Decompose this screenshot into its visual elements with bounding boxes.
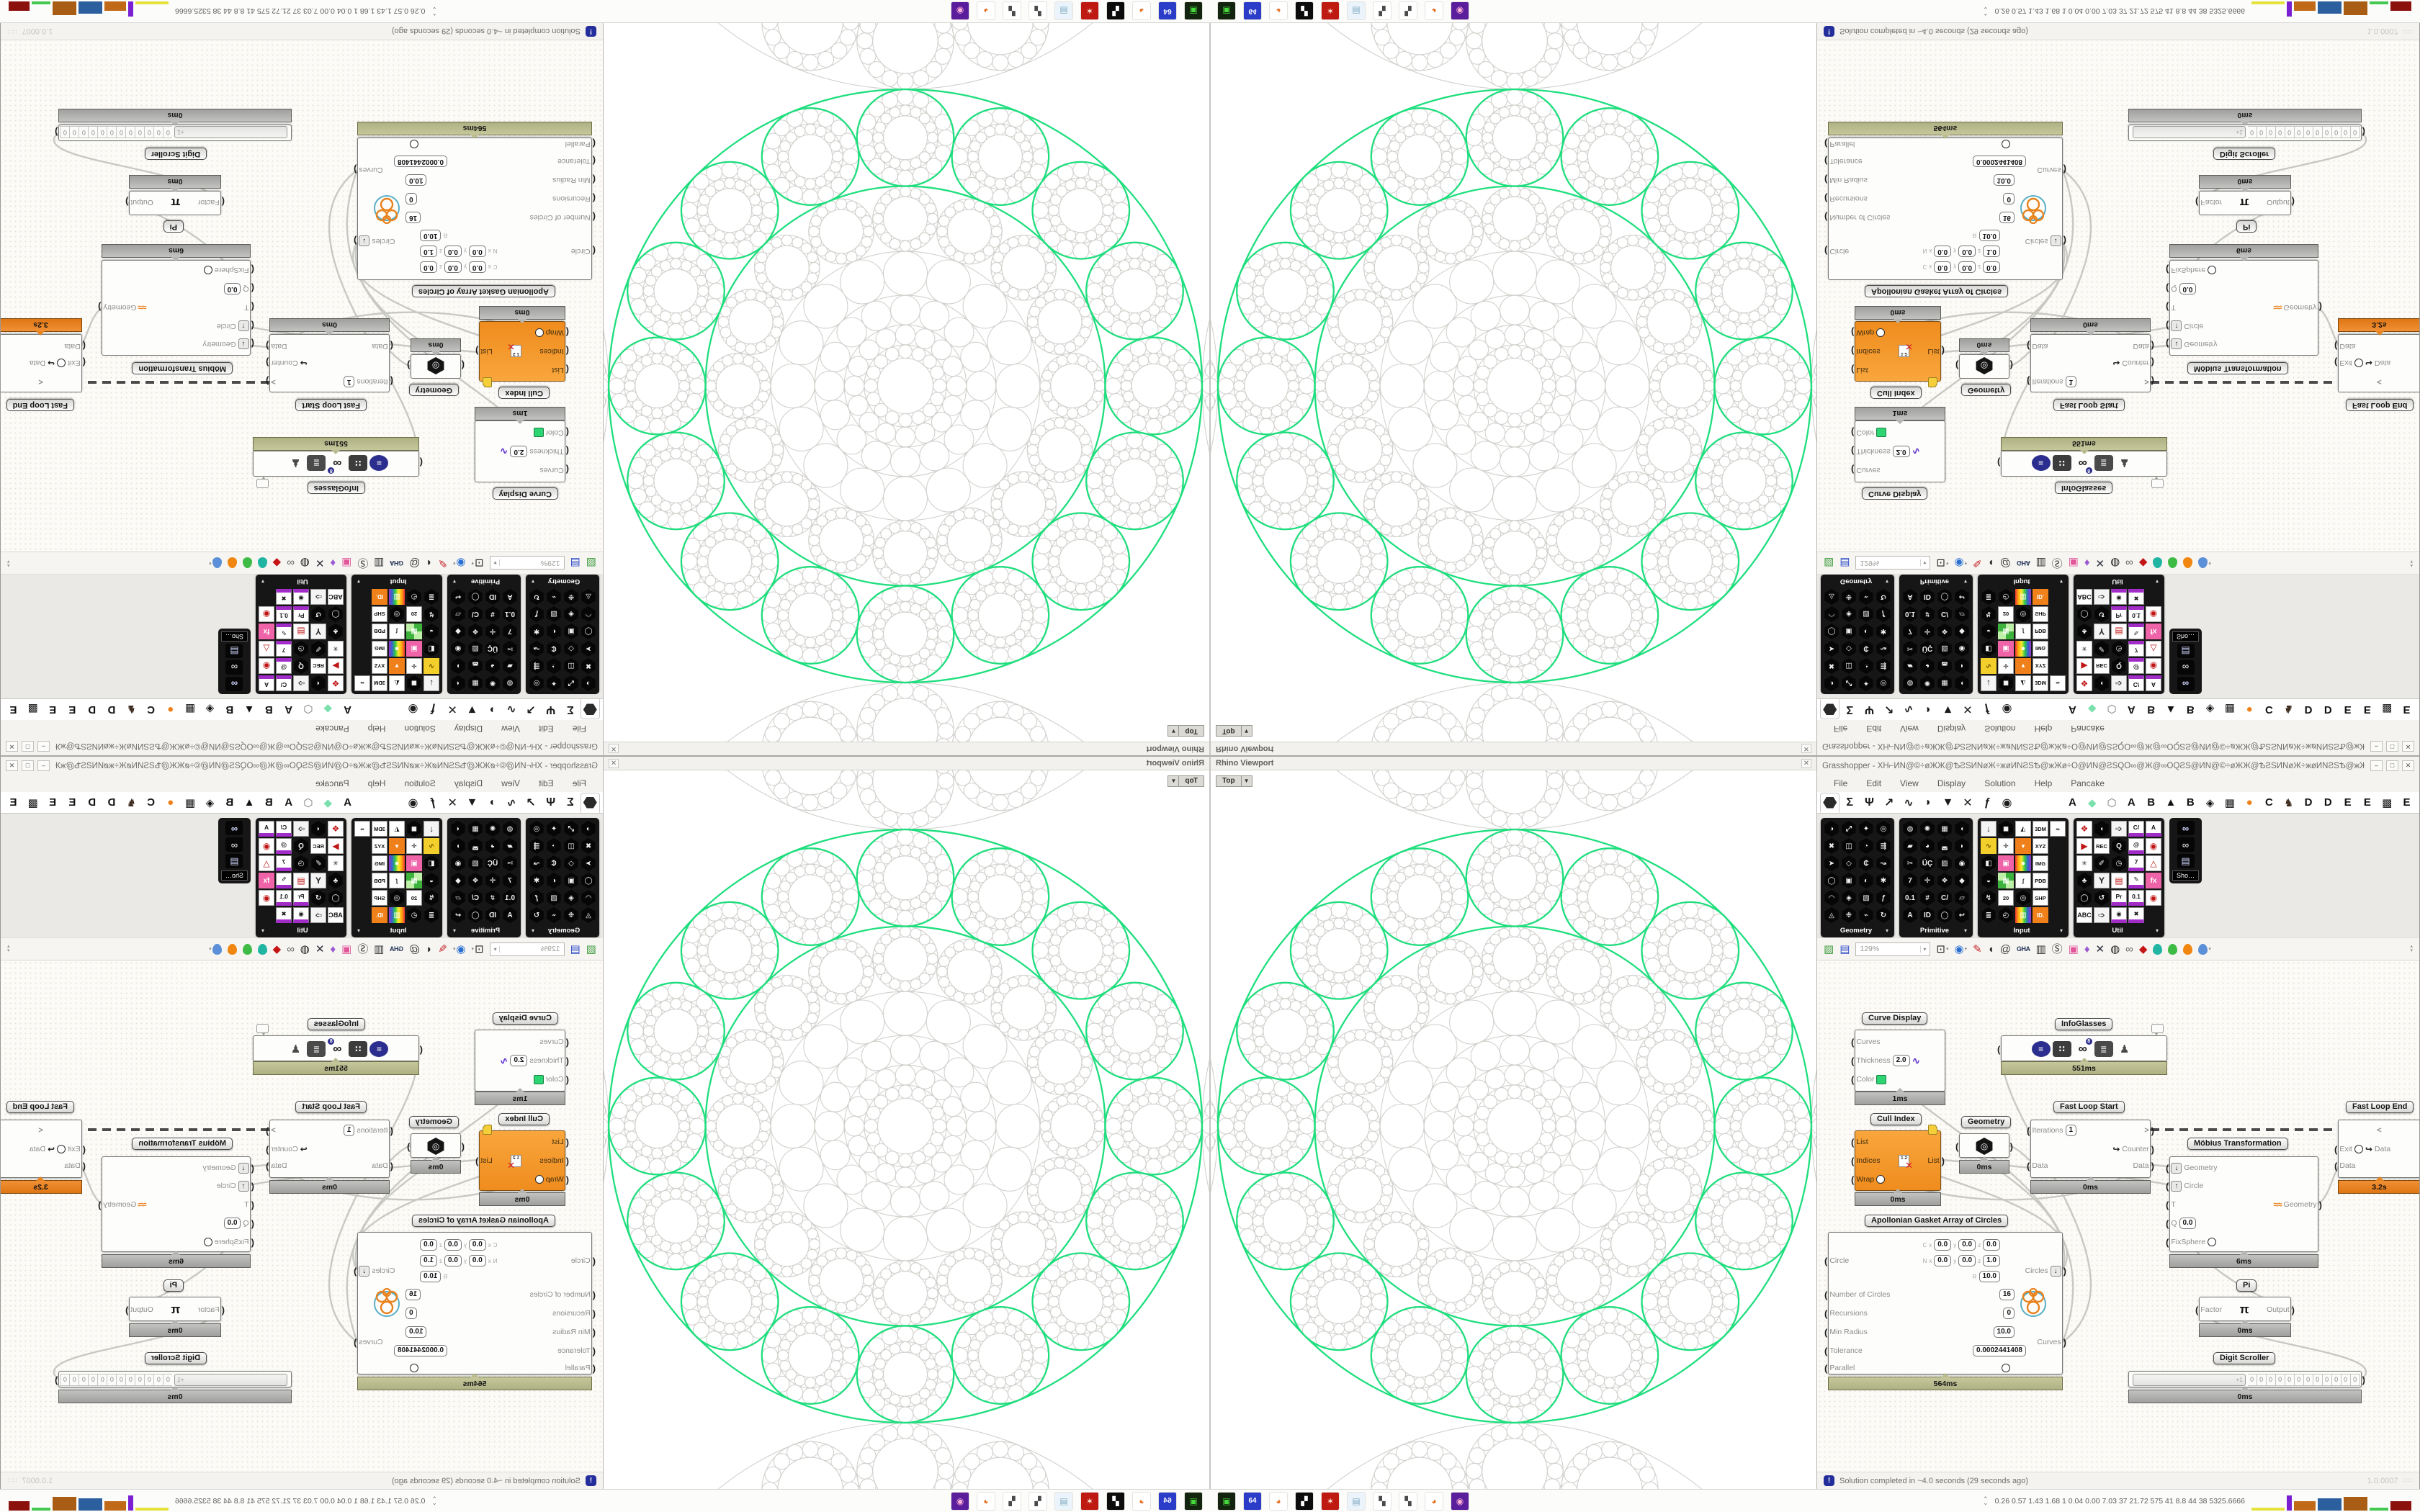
archive-icon[interactable]: ≣ [2094,1041,2113,1057]
component-icon[interactable]: ◔ [1858,838,1874,854]
component-icon[interactable]: ▰ [502,838,518,854]
input-port[interactable]: ( [2334,359,2337,368]
tab-params[interactable] [581,700,600,720]
panel-footer-primitive[interactable]: Primitive▾ [450,576,518,587]
menu-item-pancake[interactable]: Pancake [2061,722,2114,735]
component-icon[interactable]: ◆ [450,873,466,888]
component-icon[interactable]: ✖ [276,589,292,605]
component-icon[interactable]: ✦ [546,821,562,837]
input-port[interactable]: ( [1851,428,1854,438]
panel-footer-input[interactable]: Input▾ [354,576,439,587]
digit-cell[interactable]: 0 [79,127,88,139]
tab-transform[interactable]: ƒ [423,793,442,813]
menu-item-solution[interactable]: Solution [1975,722,2025,735]
flatten-button[interactable]: ↓ [2051,236,2061,247]
component-icon[interactable]: ◯ [467,907,483,923]
component-icon[interactable] [2050,606,2066,622]
component-icon[interactable]: ✖ [1824,838,1839,854]
component-icon[interactable]: ❖ [1937,624,1953,639]
component-icon[interactable]: ❉ [563,907,579,923]
component-icon[interactable]: ✎ [2128,873,2144,888]
component-icon[interactable]: ⤢ [1841,821,1857,837]
component-icon[interactable]: 3DM [2033,675,2048,691]
plugin-tab-2[interactable]: ⬡ [298,703,318,716]
close-icon[interactable]: ✕ [609,744,619,754]
component-icon[interactable]: ◆ [1954,873,1970,888]
output-port[interactable]: ) [125,198,128,207]
component-icon[interactable]: Q [293,838,309,854]
component-icon[interactable]: ◯ [328,606,344,622]
close-icon[interactable]: ✕ [609,759,619,768]
component-icon[interactable]: ▤ [293,624,309,639]
component-icon[interactable]: ❖ [467,873,483,888]
menu-item-display[interactable]: Display [1928,722,1975,735]
component-icon[interactable]: ✎ [276,624,292,639]
obscure-icon[interactable]: @ [409,558,420,569]
input-port[interactable]: ( [1851,447,1854,456]
infoglasses-icon[interactable]: ∞ [2177,660,2195,675]
component-icon[interactable]: ID [1919,589,1935,605]
component-icon[interactable]: ▤ [2111,624,2127,639]
plugin-tab-12[interactable]: D [2298,796,2318,809]
panel-footer-input[interactable]: Input▾ [1981,925,2066,936]
component-icon[interactable]: ⤢ [563,675,579,691]
component-icon[interactable]: ◗ [1954,838,1970,854]
component-icon[interactable]: @ [2128,658,2144,674]
component-icon[interactable]: ↯ [1981,890,1996,906]
output-port[interactable]: ) [2151,1126,2154,1135]
component-icon[interactable]: ♣ [2076,873,2092,888]
bulb-icon[interactable]: ♦ [331,558,336,569]
tab-transform[interactable]: ƒ [1978,700,1997,720]
output-port[interactable]: ) [266,1145,269,1154]
digit-cell[interactable]: 0 [97,127,107,139]
menu-item-pancake[interactable]: Pancake [306,722,359,735]
component-icon[interactable]: ⌁ [546,907,562,923]
value-chip[interactable]: 10.0 [1994,1326,2015,1338]
component-icon[interactable]: ✱ [529,624,544,639]
tab-maths[interactable]: Σ [560,700,580,720]
node-fast-loop-start[interactable]: (Iterations1>)↪Counter)(DataData) [2030,1120,2151,1178]
input-port[interactable]: ( [593,1346,596,1356]
taskbar-red-badge[interactable]: ✶ [1080,1492,1099,1511]
component-icon[interactable]: ◷ [2111,855,2127,871]
plugin-tab-14[interactable]: E [63,796,82,809]
resize-grip[interactable]: ∷∷ [7,27,17,35]
value-chip[interactable]: 16 [405,212,421,223]
component-icon[interactable]: ▼ [389,658,405,674]
digit-cell[interactable]: 0 [2285,127,2295,139]
chevron-down-icon[interactable]: ▾ [2060,927,2063,934]
input-port[interactable]: ( [251,322,254,331]
taskbar-firefox-2[interactable]: ◕ [1425,1492,1443,1511]
taskbar-terminal[interactable]: ▣ [1217,2,1236,21]
viewport-canvas[interactable] [604,23,1209,742]
tab-params[interactable] [581,793,600,813]
toggle-circle[interactable] [2002,1364,2010,1372]
open-file-icon[interactable]: ▨ [586,944,596,955]
menu-item-file[interactable]: File [563,722,596,735]
input-port[interactable]: ( [593,194,596,204]
output-port[interactable]: ) [2319,1200,2322,1210]
component-icon[interactable]: ✛ [1919,873,1935,888]
value-chip[interactable]: 0.0 [444,1239,462,1251]
toggle-circle[interactable] [410,1364,418,1372]
toggle-circle[interactable] [535,328,544,337]
expression-button[interactable]: ↑ [2171,321,2182,332]
digit-scroller-track[interactable]: +1 [174,1374,287,1386]
value-chip[interactable]: 1 [344,376,355,387]
input-port[interactable]: ( [2027,377,2030,387]
digit-cell[interactable]: 0 [2304,1374,2313,1386]
output-port[interactable]: ) [1942,347,1945,356]
chevron-down-icon[interactable]: ▾ [532,927,534,934]
component-icon[interactable]: ◔ [1858,658,1874,674]
component-icon[interactable]: ➩ [2111,821,2127,837]
input-port[interactable]: ( [251,340,254,349]
component-icon[interactable]: ▱ [1954,606,1970,622]
tab-maths[interactable]: Σ [560,793,580,813]
grid-icon[interactable]: ∷ [349,1041,367,1057]
plugin-tab-12[interactable]: D [102,796,121,809]
find-icon[interactable]: Ⓢ [357,944,368,955]
component-icon[interactable]: ◕ [485,838,501,854]
find-icon[interactable]: Ⓢ [2052,558,2063,569]
panel-footer-util[interactable]: Util▾ [2076,925,2161,936]
component-icon[interactable]: Q [2111,658,2127,674]
component-icon[interactable]: ◼ [1998,675,2014,691]
expression-button[interactable]: ↑ [2171,1181,2182,1192]
input-port[interactable]: ( [2027,342,2030,351]
input-port[interactable]: ( [1851,366,1854,375]
taskbar-purple-mask[interactable]: ◉ [951,1492,969,1511]
component-icon[interactable]: ◎ [1875,675,1891,691]
component-icon[interactable]: ◗ [450,658,466,674]
chevron-down-icon[interactable]: ▾ [357,927,360,934]
component-icon[interactable]: ➩ [293,675,309,691]
plugin-tab-6[interactable]: B [220,796,239,809]
infoglasses-icon[interactable]: ∞ [226,677,243,691]
close-button[interactable]: ✕ [2402,760,2414,771]
plugin-tab-8[interactable]: ▦ [181,796,200,809]
plugin-tab-0[interactable]: A [2063,796,2082,809]
component-icon[interactable]: @ [2128,838,2144,854]
component-icon[interactable]: ➩ [310,589,326,605]
node-pi[interactable]: (FactorπOutput) [2199,1297,2291,1321]
toggle-circle[interactable] [204,266,212,274]
disable-icon[interactable]: ✕ [2096,558,2105,569]
maximize-button[interactable]: □ [2386,741,2398,752]
component-icon[interactable]: ➤ [581,855,596,871]
sticky-note-icon[interactable] [1928,1125,1937,1135]
node-cull-index[interactable]: (List(Indices1 2✕List)(Wrap [1855,321,1941,382]
chevron-down-icon[interactable]: ▾ [494,560,500,567]
output-port[interactable]: ) [2151,342,2154,351]
gem-icon[interactable]: ◆ [2139,944,2148,955]
component-icon[interactable]: PDB [372,624,387,639]
component-icon[interactable]: IMG [372,641,387,657]
digit-cell[interactable]: 0 [69,1374,79,1386]
component-icon[interactable]: ƒ [529,890,544,906]
value-chip[interactable]: 0.0 [1958,246,1976,257]
component-icon[interactable]: ✛ [1998,838,2014,854]
component-icon[interactable]: REC [2094,838,2110,854]
chevron-down-icon[interactable]: ▾ [2156,927,2159,934]
taskbar-floppy-64[interactable]: 64 [1158,2,1177,21]
component-icon[interactable]: ▱ [450,606,466,622]
plugin-tab-13[interactable]: D [82,703,102,716]
tab-sets[interactable]: Ψ [1860,793,1879,813]
plugin-tab-1[interactable]: ◆ [2082,796,2102,809]
taskbar-maze-glyph-1[interactable]: ▚ [1373,1492,1391,1511]
color-swatch[interactable] [1876,1075,1886,1084]
plugin-tab-5[interactable]: ▲ [239,796,259,809]
component-icon[interactable]: ✖ [1824,658,1839,674]
component-icon[interactable]: ▧ [546,890,562,906]
component-icon[interactable]: ◆ [1954,624,1970,639]
component-icon[interactable]: ▦ [467,821,483,837]
viewport-view-dropdown[interactable]: Top ▼ [1168,775,1204,787]
component-icon[interactable]: ▦ [406,873,422,888]
component-icon[interactable]: ➩ [2094,589,2110,605]
component-icon[interactable]: ◉ [450,855,466,871]
plugin-tab-17[interactable]: E [2397,703,2416,716]
balloon-blue-icon[interactable]: ▾ [209,558,222,569]
open-file-icon[interactable]: ▨ [586,558,596,569]
digit-cell[interactable]: 0 [107,1374,116,1386]
component-icon[interactable]: ▣ [1998,855,2014,871]
component-icon[interactable] [2146,589,2161,605]
component-icon[interactable]: Y [310,624,326,639]
plugin-tab-5[interactable]: ▲ [2161,796,2180,809]
component-icon[interactable]: C/ [2128,675,2144,691]
component-icon[interactable] [2050,838,2066,854]
chevron-down-icon[interactable]: ▾ [1946,947,1949,952]
component-icon[interactable]: ◉ [2146,658,2161,674]
menu-item-view[interactable]: View [492,722,529,735]
component-icon[interactable]: ✖ [2128,907,2144,923]
value-chip[interactable]: 2.0 [1893,1055,1910,1066]
output-port[interactable]: ) [2010,361,2013,371]
input-port[interactable]: ( [1955,361,1958,371]
save-file-icon[interactable]: ▤ [1839,944,1850,955]
input-port[interactable]: ( [390,377,393,387]
component-icon[interactable]: ▱ [1954,890,1970,906]
tab-sets[interactable]: Ψ [541,700,560,720]
plugin-tab-2[interactable]: ⬡ [298,796,318,809]
component-icon[interactable]: ◕ [1919,838,1935,854]
input-port[interactable]: ( [566,1056,569,1066]
component-icon[interactable]: ◷ [293,855,309,871]
horn-icon[interactable]: ◖ [1988,944,1994,955]
component-icon[interactable]: ◭ [2015,675,2031,691]
component-icon[interactable]: ◎ [2015,606,2031,622]
component-icon[interactable]: ◫ [1841,838,1857,854]
digit-cell[interactable]: 0 [2313,127,2323,139]
taskbar-maze-glyph-2[interactable]: ▚ [1003,1492,1021,1511]
save-file-icon[interactable]: ▤ [570,944,581,955]
maximize-button[interactable]: □ [2386,760,2398,771]
plugin-tab-10[interactable]: C [2259,796,2279,809]
value-chip[interactable]: 10.0 [420,1271,441,1282]
component-icon[interactable]: ◬ [1824,907,1839,923]
panel-footer-util[interactable]: Util▾ [2076,576,2161,587]
find-icon[interactable]: Ⓢ [2052,944,2063,955]
horn-icon[interactable]: ◖ [426,944,432,955]
plugin-tab-5[interactable]: ▲ [239,703,259,716]
menu-item-solution[interactable]: Solution [1975,777,2025,790]
input-port[interactable]: ( [2027,1126,2030,1135]
balloon-orange-icon[interactable] [2183,558,2192,569]
component-icon[interactable]: ▼ [2015,658,2031,674]
component-icon[interactable]: ABC [328,907,344,923]
component-icon[interactable]: ◕ [1919,658,1935,674]
rings-icon[interactable]: ∞ [2125,558,2133,569]
value-chip[interactable]: 10.0 [1979,230,2000,241]
output-port[interactable]: ) [266,1126,269,1135]
value-chip[interactable]: 0.0 [1958,261,1976,273]
value-chip[interactable]: 0.0 [444,261,462,273]
component-icon[interactable]: ▣ [406,641,422,657]
component-icon[interactable]: 7 [1902,624,1918,639]
infoglasses-icon[interactable]: ∞ [226,837,243,852]
component-icon[interactable]: 0.1 [276,890,292,906]
component-icon[interactable]: ✱ [529,873,544,888]
component-icon[interactable]: ♣ [328,873,344,888]
component-icon[interactable]: ▧ [546,606,562,622]
component-icon[interactable]: ▥ [389,907,405,923]
component-icon[interactable]: ∫ [389,624,405,639]
component-icon[interactable]: ✦ [1858,821,1874,837]
taskbar-firefox-2[interactable]: ◕ [977,2,995,21]
input-port[interactable]: ( [1824,1364,1827,1373]
component-icon[interactable]: ID. [372,907,387,923]
component-icon[interactable]: ◫ [563,658,579,674]
rings-icon[interactable]: ∞ [287,558,295,569]
value-chip[interactable]: 0.0 [1934,246,1951,257]
component-icon[interactable]: ◐ [1858,624,1874,639]
panel-footer-primitive[interactable]: Primitive▾ [1902,925,1970,936]
component-icon[interactable]: ✳ [328,855,344,871]
component-icon[interactable]: ↻ [1875,589,1891,605]
tab-intersect[interactable]: ✕ [442,793,462,813]
component-icon[interactable]: ↝ [529,641,544,657]
output-port[interactable]: ) [407,361,410,371]
node-geometry-param[interactable]: (◎) [1959,1133,2009,1158]
component-icon[interactable]: Q [293,658,309,674]
component-icon[interactable]: 7 [1902,873,1918,888]
component-icon[interactable]: ↓ [423,675,439,691]
input-port[interactable]: ( [222,1305,225,1315]
plugin-tab-7[interactable]: ◈ [2200,796,2220,809]
output-port[interactable]: ) [2063,237,2066,246]
balloon-dark-icon[interactable]: ◍ [2110,558,2120,569]
plugin-tab-2[interactable]: ⬡ [2102,703,2121,716]
color-swatch[interactable] [534,428,544,438]
puzzle-icon[interactable]: ♟ [2115,1041,2134,1057]
chevron-down-icon[interactable]: ▾ [1886,927,1888,934]
component-icon[interactable]: ⌁ [1858,589,1874,605]
viewport-view-dropdown[interactable]: Top ▼ [1216,725,1252,737]
plugin-tab-9[interactable]: ● [161,703,180,716]
output-port[interactable]: ) [407,1142,410,1151]
taskbar-notepad[interactable]: ▤ [1347,1492,1366,1511]
value-chip[interactable]: 2.0 [510,1055,527,1066]
component-icon[interactable]: 20 [406,890,422,906]
component-icon[interactable]: ÜÇ [485,641,501,657]
node-curve-display[interactable]: (Curves(Thickness2.0∿(Color [475,1030,565,1092]
plugin-tab-9[interactable]: ● [2239,796,2259,809]
output-port[interactable]: ) [354,166,357,175]
menu-item-edit[interactable]: Edit [529,722,563,735]
gha-icon[interactable]: GHA [390,946,404,953]
toggle-circle[interactable] [1876,328,1885,337]
component-icon[interactable]: ↻ [1875,907,1891,923]
taskbar-red-badge[interactable]: ✶ [1080,2,1099,21]
chevron-down-icon[interactable]: ▾ [2208,561,2211,566]
component-icon[interactable]: ◬ [1824,589,1839,605]
value-chip[interactable]: 0.0 [469,261,486,273]
node-mobius-transformation[interactable]: (↓Geometry(↑Circle(T≈≈Geometry)(Q0.0(Fix… [102,260,251,356]
input-port[interactable]: ( [1851,1056,1854,1066]
input-port[interactable]: ( [2166,1219,2169,1228]
taskbar-firefox-2[interactable]: ◕ [1425,2,1443,21]
component-icon[interactable]: ◔ [546,658,562,674]
goggles-icon[interactable]: ∞8 [2074,455,2092,471]
archive-icon[interactable]: ≣ [307,455,326,471]
puzzle-icon[interactable]: ♟ [286,455,305,471]
tab-mesh[interactable]: ▼ [1938,700,1958,720]
component-icon[interactable]: ▨ [467,855,483,871]
component-icon[interactable]: ↓ [1981,675,1996,691]
plugin-tab-17[interactable]: E [4,796,23,809]
component-icon[interactable]: ✂ [1902,855,1918,871]
digit-scroller-track[interactable]: +1 [2133,127,2246,139]
component-icon[interactable]: XYZ [2033,838,2048,854]
component-icon[interactable]: ▨ [1937,641,1953,657]
tab-display[interactable]: ◉ [1997,700,2017,720]
component-icon[interactable]: ∿ [423,838,439,854]
component-icon[interactable]: fx [2146,624,2161,639]
component-icon[interactable]: ◉ [259,890,274,906]
node-fast-loop-start[interactable]: (Iterations1>)↪Counter)(DataData) [2030,334,2151,392]
component-icon[interactable]: ◎ [389,606,405,622]
component-icon[interactable]: PDB [372,873,387,888]
component-icon[interactable]: ✐ [310,855,326,871]
component-icon[interactable]: ◑ [581,821,596,837]
digit-cell[interactable]: 0 [2295,1374,2304,1386]
rings-icon[interactable]: ∞ [2125,944,2133,955]
obscure-icon[interactable]: @ [2000,944,2011,955]
component-icon[interactable]: 7 [276,855,292,871]
close-icon[interactable]: ✕ [1801,759,1811,768]
input-port[interactable]: ( [566,1075,569,1084]
input-port[interactable]: ( [593,1364,596,1373]
component-icon[interactable]: ▦ [1998,873,2014,888]
component-icon[interactable]: ▰ [1902,658,1918,674]
toggle-circle[interactable] [2354,1145,2363,1153]
node-digit-scroller[interactable]: +1000000000000) [2128,125,2362,141]
component-icon[interactable]: A [259,821,274,837]
plugin-tab-12[interactable]: D [2298,703,2318,716]
component-icon[interactable]: 0.1 [502,890,518,906]
plugin-tab-11[interactable]: ♞ [2279,703,2298,716]
disable-icon[interactable]: ✕ [315,944,325,955]
taskbar-dark-cat[interactable]: ▞ [1106,2,1125,21]
component-icon[interactable] [2050,890,2066,906]
maximize-button[interactable]: □ [22,760,34,771]
component-icon[interactable]: ◇ [563,855,579,871]
